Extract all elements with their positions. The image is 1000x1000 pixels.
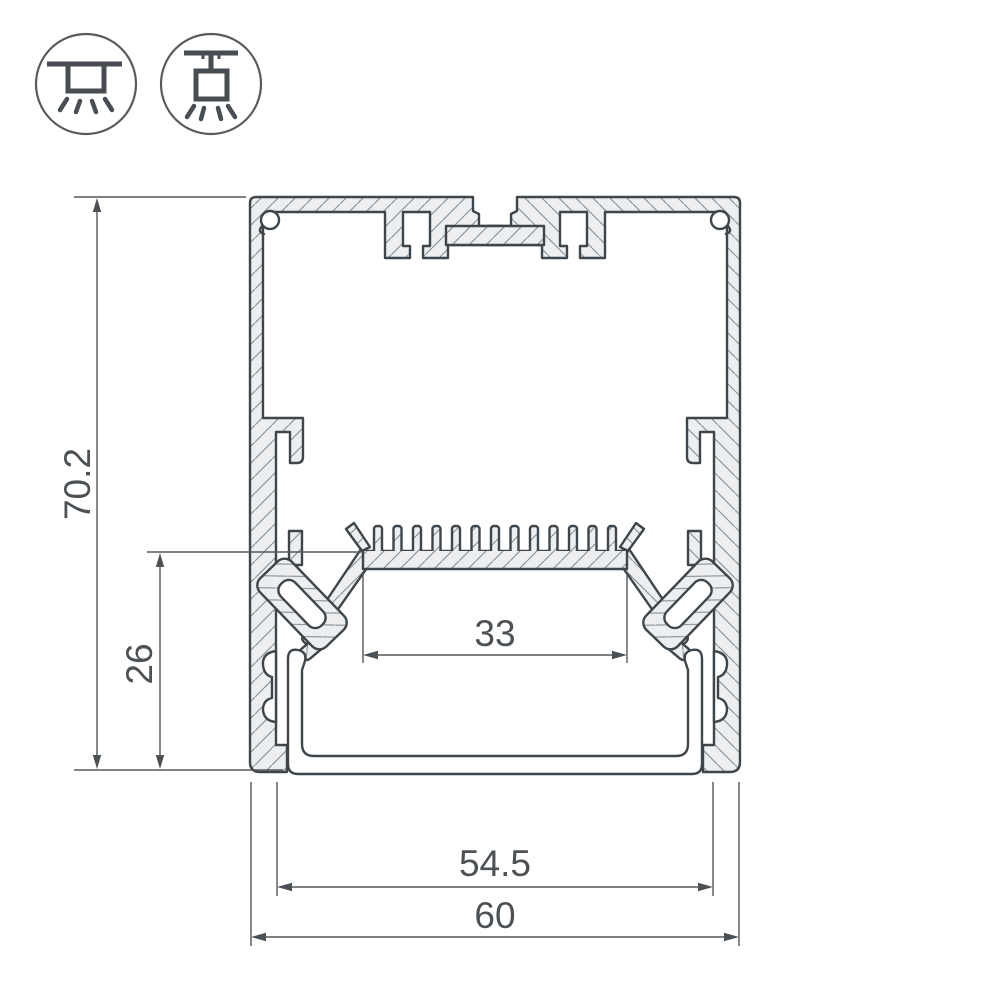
profile-cross-section [250,197,740,774]
screw-hole [261,211,279,229]
arrow-up [93,198,101,212]
overall-height-label: 70.2 [57,448,98,520]
arrow-right [698,883,713,891]
icon-circle [36,34,136,134]
arrow-left [277,883,292,891]
arrow-left [251,933,266,941]
diffuser [288,650,702,774]
inner-depth-label: 26 [119,643,160,684]
heatsink [363,526,627,569]
dim-led-shelf-width: 33 [363,573,627,663]
overall-width-label: 60 [474,895,515,936]
technical-drawing: 70.2 26 33 54.5 [0,0,1000,1000]
heatsink-plate [363,551,627,569]
icon-circle [161,34,261,134]
arrow-left [363,651,378,659]
heatsink-fins [374,526,616,553]
dim-inner-width: 54.5 [277,782,713,896]
led-shelf-width-label: 33 [474,613,515,654]
arrow-up [156,553,164,567]
dim-inner-depth: 26 [119,552,361,769]
fin-end-spur [346,523,370,551]
arrow-down [93,755,101,769]
mount-type-icons [36,34,261,134]
arrow-right [612,651,627,659]
arrow-right [724,933,739,941]
inner-width-label: 54.5 [459,843,531,884]
suspension-web [446,226,544,245]
surface-mount-icon [36,34,136,134]
profile-drawing-svg: 70.2 26 33 54.5 [0,0,1000,1000]
arrow-down [156,755,164,769]
pendant-mount-icon [161,34,261,134]
